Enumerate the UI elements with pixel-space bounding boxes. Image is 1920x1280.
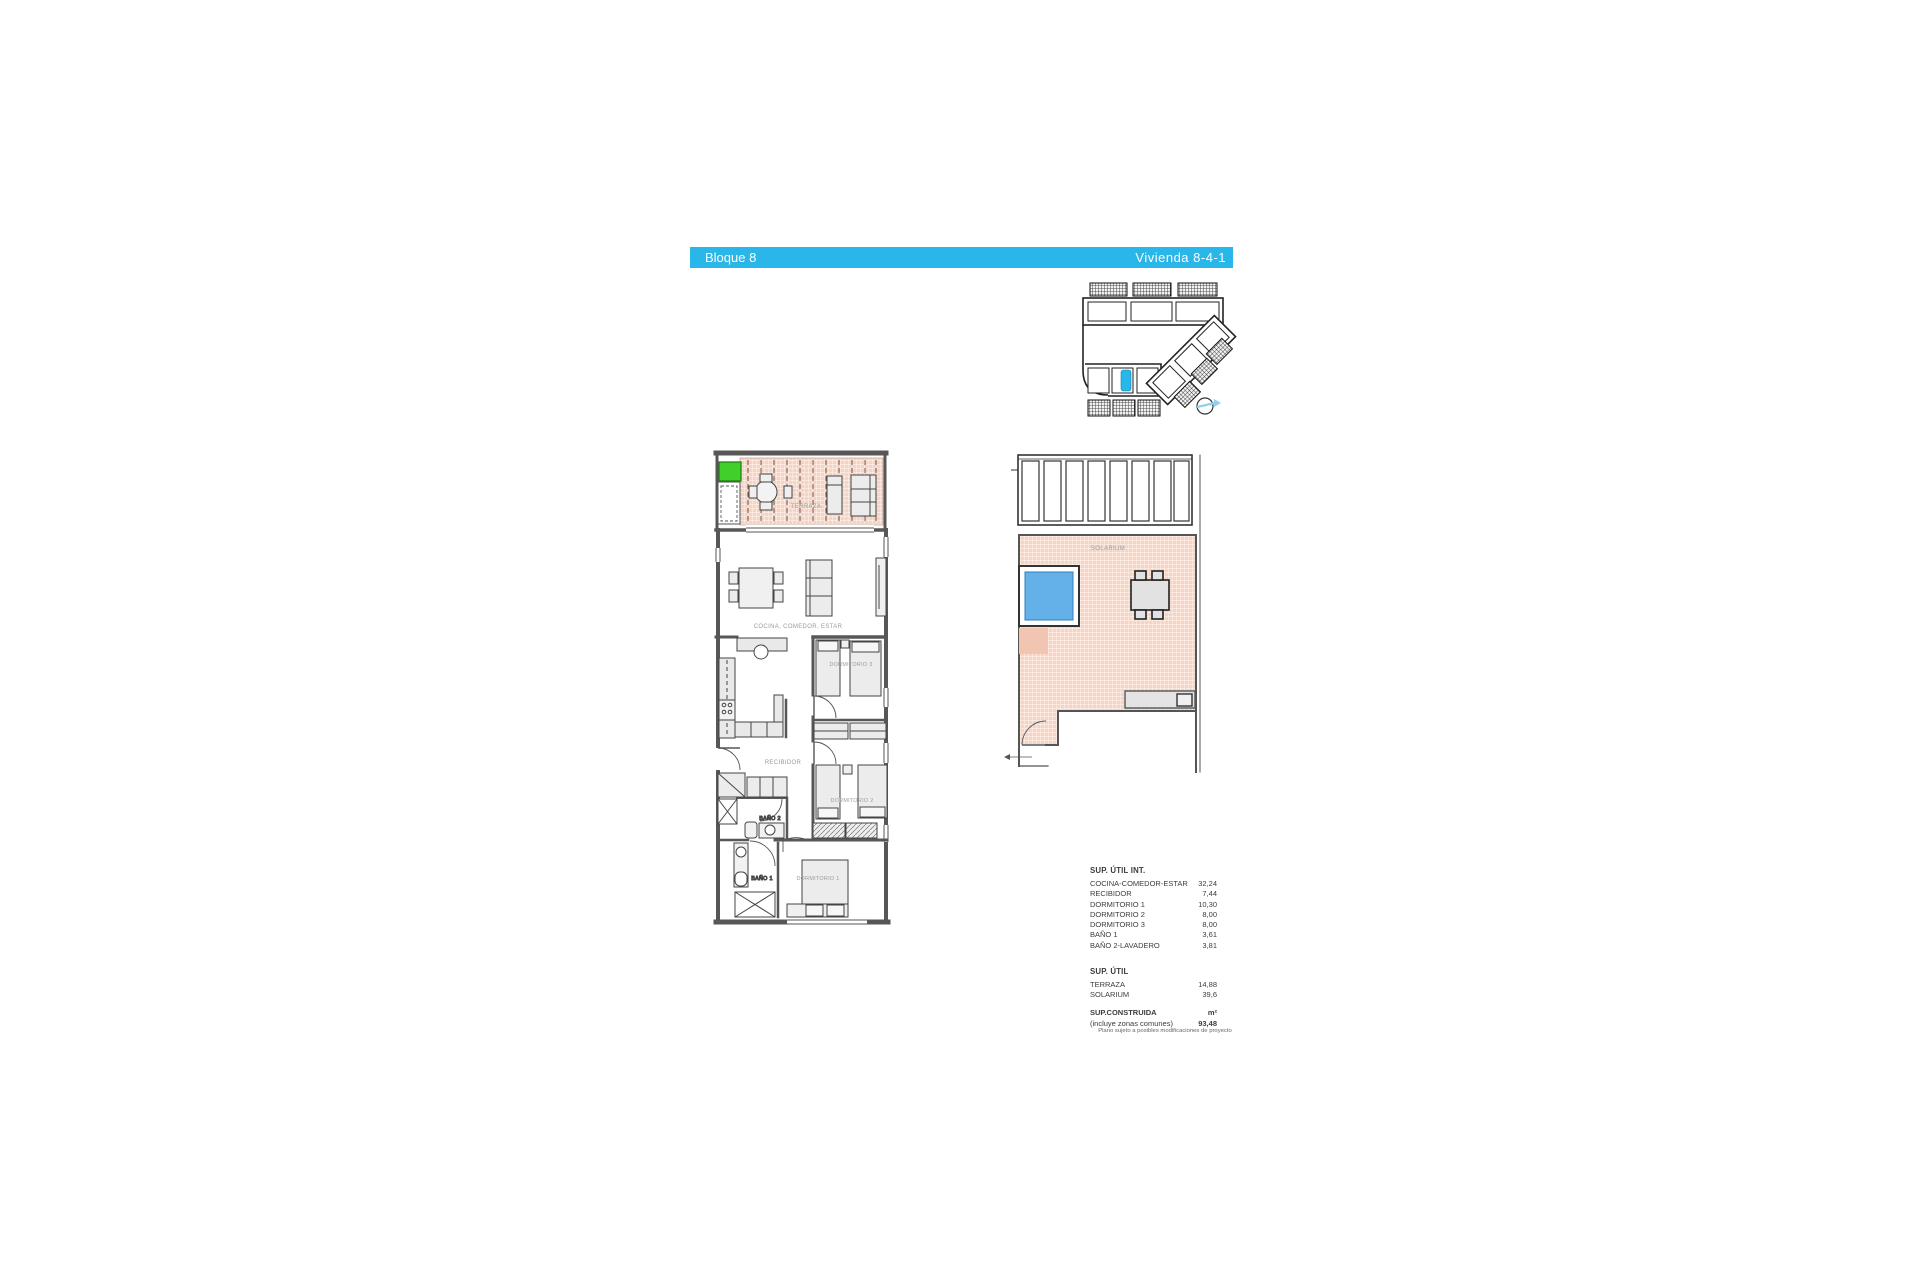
area-row: COCINA-COMEDOR-ESTAR32,24 [1090,879,1217,889]
terrace-sofa [851,475,876,516]
room-label-bano1: BAÑO 1 [751,875,773,882]
built-area-row: SUP.CONSTRUIDA m² [1090,1007,1217,1018]
pergola [1011,455,1192,525]
room-label-cocina: COCINA, COMEDOR, ESTAR [754,624,843,630]
bathroom-1: BAÑO 1 [734,841,775,917]
green-unit-marker [719,462,741,481]
block-title: Bloque 8 [690,250,756,265]
entry-arrow-icon [1004,754,1010,760]
north-arrow-icon [1197,398,1221,414]
area-row: DORMITORIO 38,00 [1090,920,1217,930]
area-row: DORMITORIO 110,30 [1090,900,1217,910]
laundry-box [718,799,737,824]
disclaimer-note: Plano sujeto a posibles modificaciones d… [1080,1028,1250,1034]
main-floor-plan: TERRAZA [690,440,925,940]
highlighted-unit-marker [1121,370,1131,391]
room-label-dormitorio1: DORMITORIO 1 [796,876,839,882]
area-row: BAÑO 13,61 [1090,930,1217,940]
kitchen [719,638,787,738]
area-table-title-int: SUP. ÚTIL INT. [1090,866,1217,875]
bedroom-2 [816,765,887,819]
room-label-terraza: TERRAZA [791,504,821,510]
room-label-dormitorio2: DORMITORIO 2 [830,798,873,804]
room-label-bano2: BAÑO 2 [759,815,781,822]
plunge-pool [1019,566,1079,626]
area-table-title-ext: SUP. ÚTIL [1090,967,1217,976]
bedroom-1 [787,860,848,917]
solarium-counter [1125,691,1195,708]
title-bar: Bloque 8 Vivienda 8-4-1 [690,247,1233,268]
bedroom-3 [814,640,886,739]
hallway: RECIBIDOR [718,748,802,797]
area-row: SOLARIUM39,6 [1090,990,1217,1000]
room-label-recibidor: RECIBIDOR [765,760,802,766]
solarium-plan: SOLARIUM [1005,445,1215,780]
living-room [729,558,886,616]
solar-panels-top [1090,283,1217,296]
area-row: DORMITORIO 28,00 [1090,910,1217,920]
room-label-dormitorio3: DORMITORIO 3 [829,662,872,668]
site-key-plan [1070,275,1255,423]
room-label-solarium: SOLARIUM [1091,546,1125,552]
pool-deck-step [1019,628,1048,654]
building-top-row [1083,298,1223,325]
bedroom-1-wardrobe [813,823,877,838]
terrace-area: TERRAZA [718,458,883,525]
solar-panels-bottom [1088,400,1160,416]
bathroom-2: BAÑO 2 [745,799,784,838]
unit-title: Vivienda 8-4-1 [1135,250,1233,265]
area-table: SUP. ÚTIL INT. COCINA-COMEDOR-ESTAR32,24… [1090,866,1217,1029]
area-row: RECIBIDOR7,44 [1090,889,1217,899]
terrace-lounger [827,476,842,514]
area-row: TERRAZA14,88 [1090,980,1217,990]
area-row: BAÑO 2-LAVADERO3,81 [1090,941,1217,951]
